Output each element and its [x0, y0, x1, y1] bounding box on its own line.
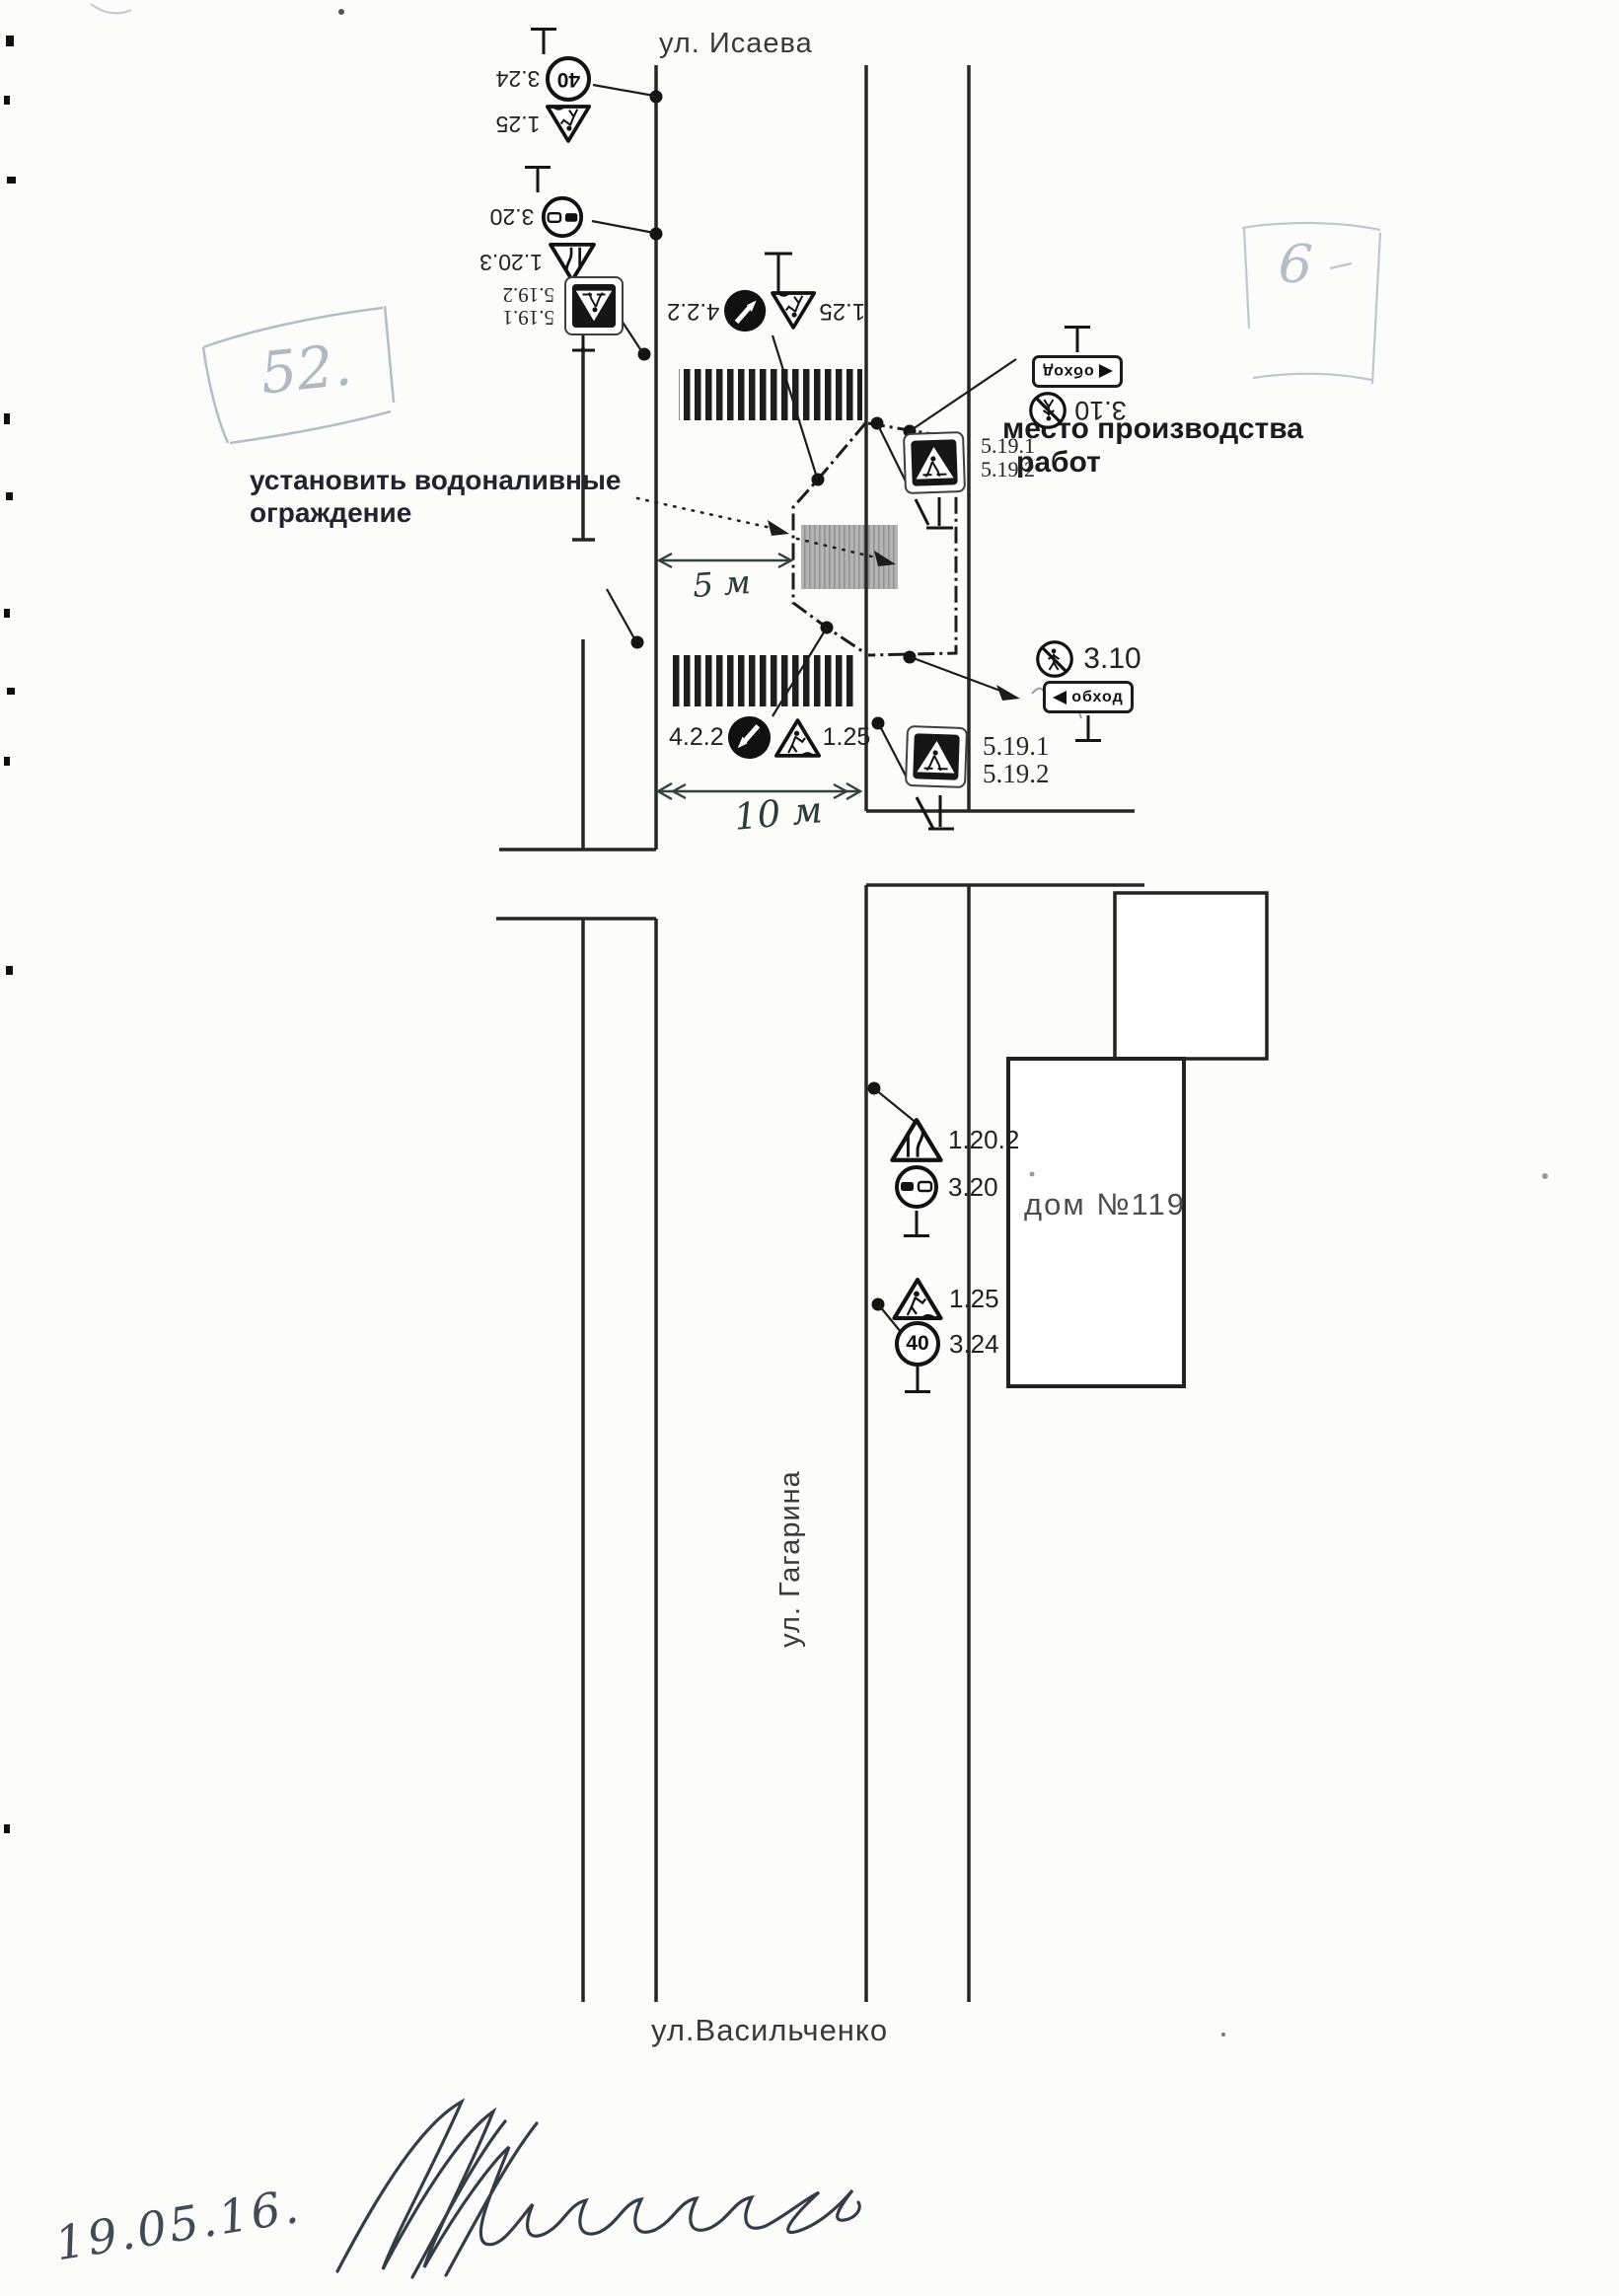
crosswalk-lower [672, 655, 857, 706]
sign-code-label: 5.19.2 [503, 283, 555, 306]
sign-group-roadworks-speed40-house: 1.25 40 3.24 [892, 1277, 999, 1393]
sign-group-narrowroad-noovertake-back: 1.20.3 3.20 [479, 166, 596, 283]
sign-code-label: 3.24 [496, 66, 541, 93]
sign-code-label: 3.10 [1074, 396, 1127, 426]
pedestrian-crossing-icon [912, 732, 961, 781]
sign-group-roadworks-speed40-back: 1.25 40 3.24 [491, 28, 596, 144]
road-narrows-icon [890, 1117, 943, 1163]
scanned-traffic-scheme-sheet: ул. Исаева ул. Гагарина ул.Васильченко у… [0, 0, 1619, 2296]
roadworks-icon [546, 104, 591, 144]
speed-limit-40-icon: 40 [895, 1321, 940, 1367]
pedestrian-crossing-icon [571, 283, 617, 329]
sign-code-label: 4.2.2 [667, 297, 719, 325]
leader-arrowhead [768, 520, 789, 536]
sign-code-label: 3.20 [490, 204, 535, 231]
sign-code-label: 1.25 [819, 297, 865, 325]
no-pedestrians-icon [1035, 639, 1074, 679]
sign-code-label: 5.19.1 [983, 732, 1050, 760]
pole-icon [1072, 715, 1104, 742]
sign-group-narrowroad-noovertake-house: 1.20.2 3.20 [890, 1117, 1019, 1237]
worksite-note-line2: работ [1016, 446, 1303, 480]
sign-code-label: 1.20.3 [479, 250, 543, 276]
detour-plate: обход [1043, 681, 1133, 713]
detour-left-icon [722, 288, 768, 333]
scheme-drawing [0, 0, 1619, 2296]
sign-code-label: 5.19.1 [503, 306, 555, 329]
pole-icon [1062, 326, 1093, 352]
speed-limit-40-icon: 40 [546, 56, 591, 102]
sign-code-label: 3.20 [948, 1172, 998, 1203]
sign-plate [564, 276, 624, 335]
sign-code-label: 1.25 [823, 723, 871, 752]
signature [337, 2102, 859, 2277]
sign-ped-crossing-right-lower [905, 725, 968, 788]
crosswalk-upper [679, 369, 862, 420]
sign-group-no-pedestrians-detour: 3.10 обход [1022, 639, 1154, 742]
sign-code-label: 5.19.2 [981, 458, 1035, 481]
sign-code-label: 3.10 [1083, 642, 1141, 676]
install-barrier-note: установить водоналивные ограждение [250, 464, 621, 529]
pole-icon [528, 28, 559, 54]
street-label-isaeva: ул. Исаева [659, 28, 813, 60]
sign-code-label: 1.25 [949, 1284, 999, 1314]
install-barrier-note-line1: установить водоналивные [250, 464, 621, 496]
connector-arrowhead [996, 685, 1020, 701]
pedestrian-crossing-icon [910, 438, 959, 487]
sign-code-label: 1.20.2 [948, 1125, 1019, 1155]
roadworks-icon [892, 1277, 943, 1321]
pole-icon [902, 1367, 933, 1393]
detour-left-icon [726, 714, 773, 761]
sign-group-ped-crossing-left-upper: 5.19.1 5.19.2 [478, 276, 624, 335]
sign-code-label: 5.19.2 [983, 760, 1050, 787]
pole-icon [522, 166, 553, 192]
sign-code-label: 5.19.1 [981, 434, 1035, 458]
sign-group-crosswalk-upper-back: 1.25 4.2.2 [667, 288, 865, 333]
left-arrow-icon [1099, 365, 1113, 379]
left-arrow-icon [1053, 691, 1067, 704]
dimension-10m-label: 10 м [732, 788, 824, 839]
pole-icon [901, 1211, 932, 1237]
sign-code-label: 1.25 [496, 111, 541, 137]
sign-group-no-pedestrians-detour-back: 3.10 обход [1010, 326, 1144, 430]
sign-code-label: 3.24 [949, 1329, 999, 1360]
no-overtaking-icon [540, 194, 585, 240]
sign-group-crosswalk-lower: 4.2.2 1.25 [669, 714, 870, 761]
sign-codes-519-upper-right: 5.19.1 5.19.2 [981, 434, 1035, 481]
install-barrier-note-line2: ограждение [250, 496, 621, 529]
pencil-corner-squiggle [91, 4, 131, 13]
street-label-vasilchenko: ул.Васильченко [651, 2013, 888, 2048]
roadworks-icon [771, 291, 816, 332]
detour-plate: обход [1032, 355, 1122, 388]
sign-code-label: 4.2.2 [669, 723, 724, 752]
building-outlines [1008, 893, 1267, 1386]
house-119-label: дом №119 [1024, 1187, 1186, 1222]
roadworks-icon [774, 717, 821, 759]
no-pedestrians-icon [1028, 391, 1067, 430]
pencil-note-6: 6 [1277, 232, 1314, 296]
dimension-5m-label: 5 м [692, 562, 752, 605]
pencil-note-52: 52. [258, 331, 355, 407]
street-label-gagarina: ул. Гагарина [774, 1465, 806, 1653]
sign-codes-519-lower-right: 5.19.1 5.19.2 [983, 732, 1050, 787]
no-overtaking-icon [893, 1163, 940, 1211]
sign-ped-crossing-right-upper [903, 431, 966, 494]
